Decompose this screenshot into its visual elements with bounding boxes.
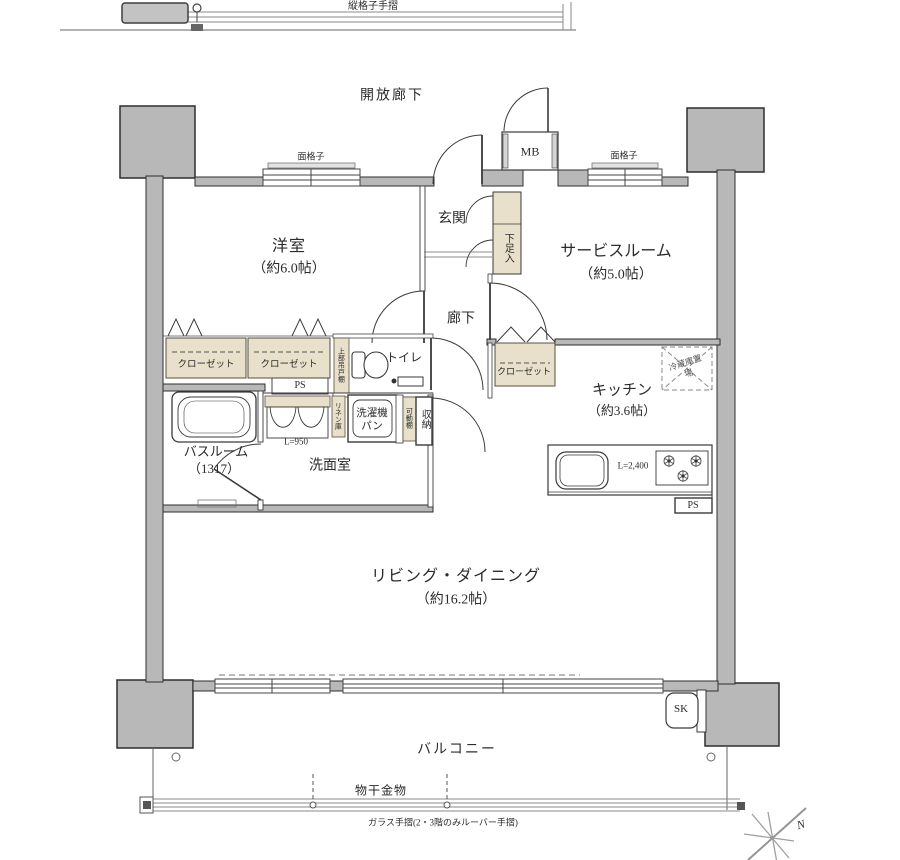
pillar-bottom-right	[705, 683, 779, 746]
compass-icon	[744, 808, 806, 860]
vanity-counter	[265, 396, 330, 407]
hallway-label: 廊下	[447, 310, 475, 328]
closet-2-label: クローゼット	[260, 360, 317, 372]
pillar-bottom-left	[117, 680, 193, 748]
storage-label: 収納	[418, 409, 431, 429]
service-room-size: （約5.0帖）	[579, 266, 653, 284]
kitchen-label: キッチン	[592, 382, 652, 401]
washroom-label: 洗面室	[309, 457, 351, 475]
western-room-label: 洋室	[272, 237, 306, 257]
floor-plan-linework	[0, 0, 900, 860]
upper-corridor-rail-label: 縦格子手摺	[348, 1, 398, 14]
toilet-bowl-icon	[364, 352, 388, 378]
entrance-area	[420, 88, 558, 291]
closet-1-box	[166, 338, 246, 378]
closet-3-box	[495, 343, 555, 386]
open-corridor-label: 開放廊下	[360, 87, 424, 105]
balcony-label: バルコニー	[417, 741, 497, 759]
service-room-label: サービスルーム	[560, 242, 672, 262]
closet-3-label: クローゼット	[497, 366, 551, 377]
slop-sink-label: SK	[674, 703, 688, 717]
upper-corridor	[60, 2, 576, 31]
grille-right-label: 面格子	[610, 150, 637, 161]
drain-pipe-icon	[193, 4, 201, 12]
western-room-size: （約6.0帖）	[252, 260, 326, 278]
closet-1-label: クローゼット	[177, 360, 234, 372]
bathtub-icon	[172, 392, 256, 442]
living-dining-label: リビング・ダイニング	[371, 567, 541, 587]
bathroom-label: バスルーム	[184, 444, 249, 460]
pillar-top-right	[687, 108, 764, 172]
kitchen-area	[495, 327, 712, 513]
toilet-tank-icon	[352, 352, 365, 378]
glass-rail-label: ガラス手摺(2・3階のみルーバー手摺)	[368, 817, 518, 828]
window-grille-right	[592, 163, 658, 168]
downspout-icon	[707, 753, 715, 761]
closet-2-box	[248, 338, 330, 378]
meter-box-label: MB	[521, 145, 540, 160]
laundry-fitting-label: 物干金物	[355, 784, 407, 799]
upper-cabinet-label: 上部吊戸棚	[337, 348, 346, 383]
living-dining-size: （約16.2帖）	[416, 591, 497, 609]
pipe-space-1-label: PS	[294, 380, 305, 393]
counter-width-label: L=2,400	[618, 460, 649, 471]
shoe-cabinet-label: 下足入	[501, 233, 514, 263]
washer-pan-label: 洗濯機パン	[355, 407, 389, 433]
entrance-label: 玄関	[438, 210, 466, 228]
bathroom-size: （1317）	[188, 461, 240, 477]
floor-plan: 縦格子手摺 開放廊下 面格子 面格子 MB 玄関 下足入 洋室 （約6.0帖） …	[0, 0, 900, 860]
toilet-label: トイレ	[386, 351, 422, 366]
pillars	[117, 106, 779, 748]
linen-cabinet-label: リネン庫	[334, 402, 343, 430]
window-grille-left	[268, 163, 355, 168]
pipe-space-2-label: PS	[687, 500, 698, 513]
grille-left-label: 面格子	[297, 151, 324, 162]
downspout-icon	[172, 753, 180, 761]
corridor-slab	[122, 3, 188, 23]
pillar-top-left	[120, 106, 195, 178]
vanity-width-label: L=950	[284, 436, 308, 447]
movable-shelf-label: 可動棚	[405, 408, 414, 429]
kitchen-size: （約3.6帖）	[588, 403, 656, 419]
